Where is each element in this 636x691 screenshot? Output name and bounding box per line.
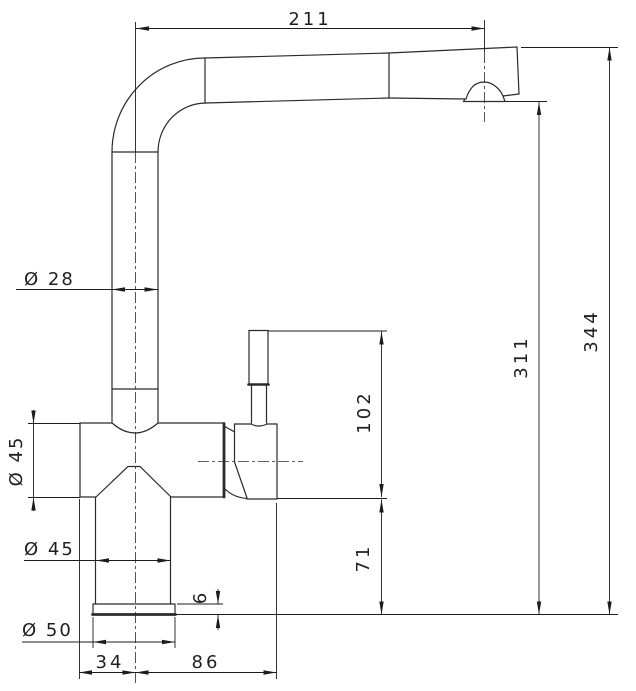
arrow-86-right [264,670,277,674]
arrow-6-bottom [216,615,220,628]
sprayhead-bottom-edge [389,94,519,99]
arrow-28-left [112,287,125,291]
arrow-71-bottom [379,602,383,615]
arrow-102-top [379,332,383,345]
arrow-211-left [136,26,149,30]
handle-stem [252,386,267,424]
arrow-34-left [79,670,92,674]
spout-elbow-inner [158,103,206,152]
housing-diagonal [235,462,248,498]
dimension-label-overall-height: 344 [581,309,602,352]
arrow-344-bottom [607,602,611,615]
dimension-label-body-diameter: Ø 45 [6,436,27,487]
housing-top-arc [224,426,235,432]
arrow-211-right [472,26,485,30]
arrow-311-top [537,102,541,115]
dimension-label-center-handle: 86 [192,652,221,673]
dimension-label-spout-diameter: Ø 28 [24,269,75,290]
arrow-50-right [162,640,175,644]
dimension-label-handle-height: 102 [354,390,375,433]
arrow-102-bottom [379,484,383,497]
arrow-28-right [145,287,158,291]
handle-grip [249,331,268,384]
arrow-45-column-right [158,558,171,562]
body-riser-saddle [112,423,158,433]
housing-stem-saddle [251,424,267,426]
body-column-cone [96,467,171,498]
dimension-label-column-diameter: Ø 45 [24,539,75,560]
dimension-label-base-diameter: Ø 50 [22,620,73,641]
arrow-45-body-bottom [31,498,35,511]
dimension-label-body-height: 71 [353,544,374,573]
arrow-45-body-top [31,411,35,424]
arrow-6-top [216,591,220,604]
arrow-45-column-left [96,558,109,562]
centerlines [136,52,485,683]
arrow-71-top [379,500,383,513]
drawing-canvas: 211 344 311 102 71 Ø 28 Ø 45 Ø 45 Ø 50 6… [0,0,636,691]
spout-top-edge [205,47,517,58]
base-flange [93,604,175,614]
arrow-311-bottom [537,602,541,615]
dimension-label-spout-reach: 211 [288,9,331,30]
dimension-label-outlet-height: 311 [511,335,532,378]
arrow-344-top [607,48,611,61]
faucet-technical-drawing: 211 344 311 102 71 Ø 28 Ø 45 Ø 45 Ø 50 6… [0,0,636,691]
spout-bottom-edge [206,98,389,103]
arrow-86-left [136,670,149,674]
dimension-label-center-front: 34 [96,652,125,673]
dimension-label-base-thickness: 6 [190,590,211,604]
sprayhead-right-edge [517,47,519,94]
arrow-50-left [93,640,106,644]
